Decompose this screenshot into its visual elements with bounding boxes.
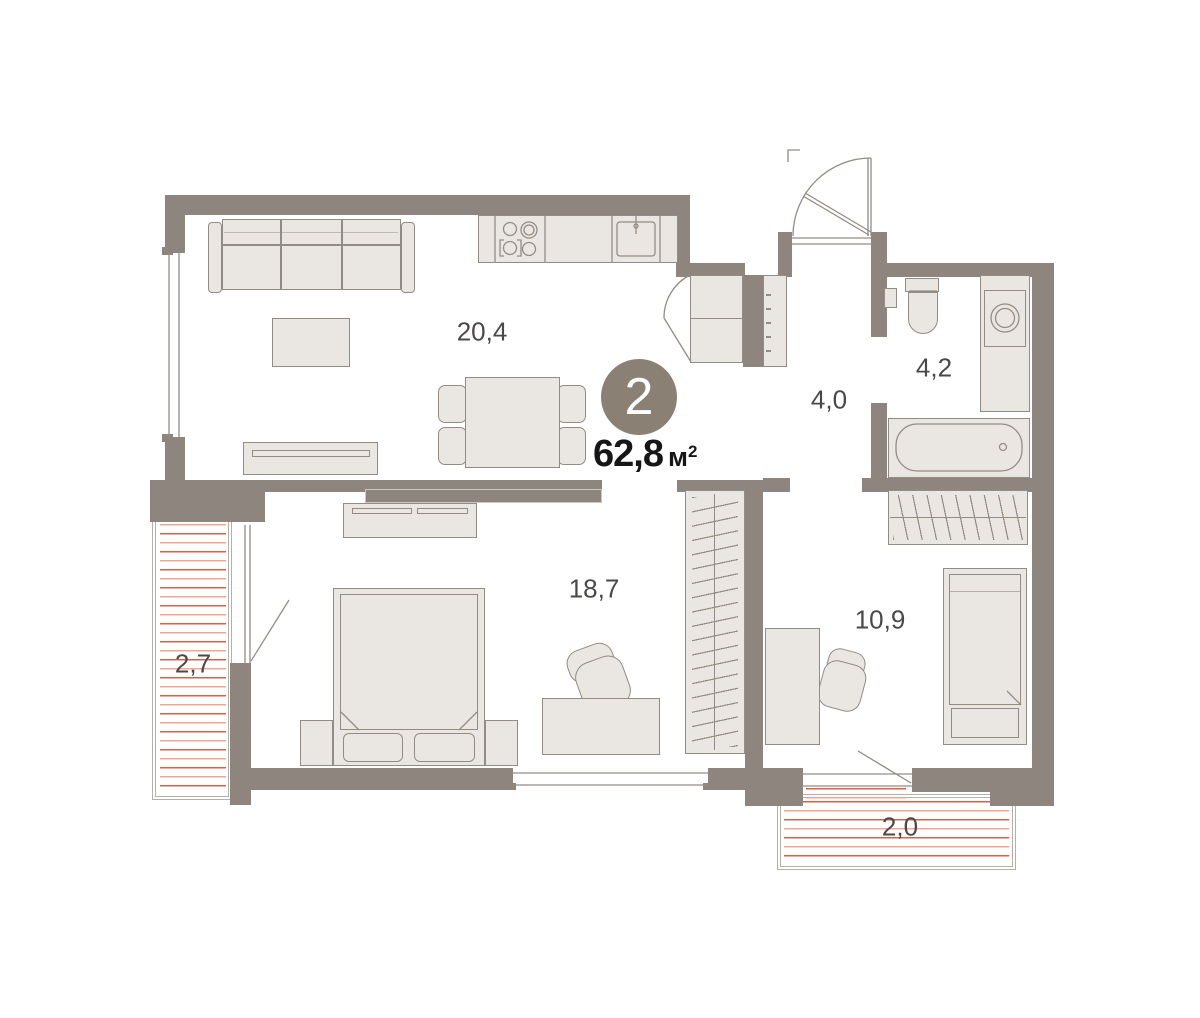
wall-segment — [251, 768, 513, 790]
kitchen-counter — [478, 215, 678, 263]
single-bed-pillow-line — [950, 591, 1020, 592]
wardrobe-rail — [714, 494, 715, 750]
dining-table — [465, 377, 560, 468]
wall-segment — [165, 195, 185, 253]
total-area-unit-sup: 2 — [688, 442, 697, 461]
tv-sideboard-handle — [252, 450, 370, 457]
wall-segment — [168, 195, 690, 215]
sofa-seat-cushion — [281, 245, 342, 290]
room-label-balcony-bottom: 2,0 — [882, 812, 918, 843]
bedroom-sliding-door[interactable] — [365, 489, 602, 503]
wall-segment — [1032, 263, 1054, 792]
sofa-arm — [401, 222, 415, 293]
wall-segment — [150, 480, 265, 522]
entrance-door-swing-icon — [788, 150, 871, 244]
room-label-bathroom: 4,2 — [916, 353, 952, 384]
balcony-door-decking — [806, 788, 906, 802]
bedroom-dresser-handle — [417, 508, 468, 514]
toilet-bowl — [908, 292, 938, 334]
wall-segment — [230, 663, 251, 805]
wall-segment — [743, 275, 763, 367]
dining-chair — [557, 385, 586, 423]
bedroom-dresser-handle — [352, 508, 412, 514]
wall-segment — [745, 480, 763, 772]
room-label-hallway: 4,0 — [811, 385, 847, 416]
total-area-unit: м — [668, 442, 688, 472]
floor-plan: 20,4 4,0 4,2 18,7 10,9 2,7 2,0 2 62,8м2 — [0, 0, 1200, 1018]
single-bed-drawer — [951, 708, 1019, 738]
wall-segment — [708, 768, 763, 790]
total-area-value: 62,8 — [593, 433, 663, 475]
wall-segment — [990, 768, 1054, 806]
wardrobe-hangers — [692, 497, 738, 747]
desk — [542, 698, 660, 755]
room-count-badge: 2 — [601, 359, 677, 435]
sofa-back-seam — [224, 232, 398, 233]
bed-pillow — [343, 733, 403, 762]
window-cap — [162, 247, 173, 255]
double-bed-mattress — [340, 594, 478, 730]
window-left-icon — [169, 253, 179, 437]
nightstand — [485, 720, 518, 766]
dining-chair — [438, 427, 467, 465]
balcony-door-left-icon — [245, 525, 289, 663]
wall-segment — [763, 478, 790, 492]
hallway-cabinet-shelf-marks — [766, 282, 771, 360]
wall-segment — [871, 403, 887, 490]
washing-machine — [984, 290, 1026, 347]
coffee-table — [272, 318, 350, 367]
single-bed-mattress — [949, 574, 1021, 705]
room-label-bedroom-2: 10,9 — [855, 605, 906, 636]
bathtub — [888, 418, 1030, 478]
balcony-door-bottom-icon — [802, 751, 912, 786]
wall-meter-box — [884, 288, 897, 308]
room-label-balcony-left: 2,7 — [175, 649, 211, 680]
window-bedroom-icon — [513, 773, 708, 785]
dining-chair — [557, 427, 586, 465]
desk — [765, 628, 820, 745]
clothes-rack-rail — [890, 517, 1026, 518]
fridge — [690, 275, 743, 363]
wall-segment — [778, 232, 792, 277]
fridge-door-swing-icon — [664, 275, 691, 362]
window-cap — [703, 783, 712, 790]
tv-sideboard — [243, 442, 378, 475]
sofa-seat-cushion — [342, 245, 401, 290]
fridge-divider — [691, 318, 742, 319]
total-area: 62,8м2 — [593, 433, 697, 476]
bed-pillow — [414, 733, 475, 762]
window-cap — [162, 434, 173, 442]
sofa-arm — [208, 222, 222, 293]
window-cap — [507, 783, 516, 790]
dining-chair — [438, 385, 467, 423]
sofa-seat-cushion — [222, 245, 281, 290]
toilet-tank — [905, 278, 939, 292]
room-label-bedroom: 18,7 — [569, 574, 620, 605]
room-label-living-kitchen: 20,4 — [457, 317, 508, 348]
room-count: 2 — [625, 367, 654, 427]
nightstand — [300, 720, 333, 766]
